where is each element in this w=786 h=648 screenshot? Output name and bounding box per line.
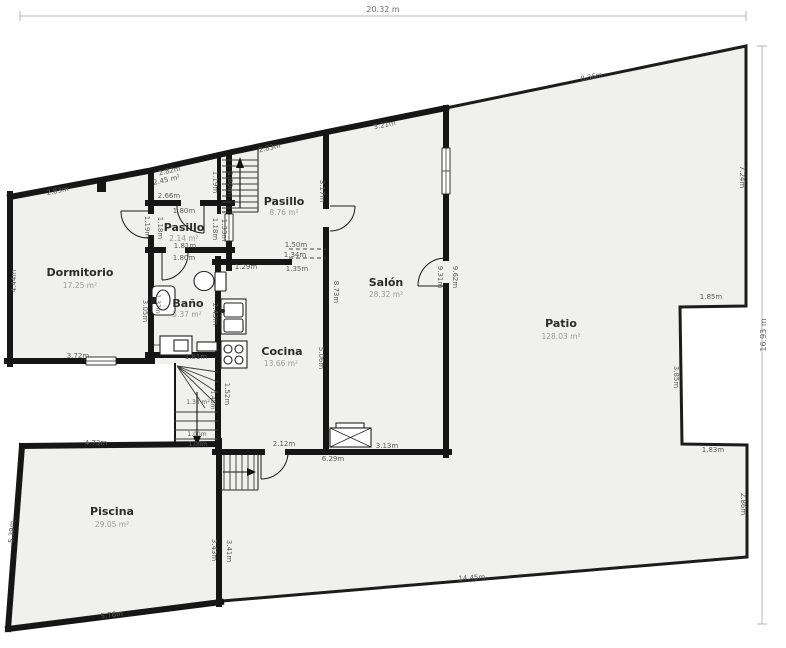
- toilet-bowl: [194, 272, 214, 291]
- dim-hatch-mid: 1.34m: [284, 251, 307, 259]
- dim-right-total: 16.93 m: [759, 318, 768, 351]
- dim-patio-right-upper: 7.24m: [738, 166, 746, 189]
- room-fills: [8, 46, 747, 629]
- dim-dorm-door-right: 1.18m: [156, 217, 164, 240]
- area-dormitorio: 17.25 m²: [63, 281, 97, 290]
- dim-hatch-top: 1.50m: [285, 241, 308, 249]
- dim-notch-side: 3.85m: [672, 366, 680, 389]
- kitchen-stove: [221, 341, 247, 368]
- dim-cocina-left: 2.43m: [211, 303, 219, 326]
- dim-pasillo-large-side: 3.17m: [318, 180, 326, 203]
- label-bano: Baño: [172, 297, 204, 310]
- floorplan-svg: 20.32 m 16.93 m Dormitorio 17.25 m² Pasi…: [0, 0, 786, 648]
- label-pasillo-large: Pasillo: [264, 195, 305, 208]
- dim-winder-exit-bottom: 1.00m: [188, 441, 207, 448]
- area-pasillo-large: 8.76 m²: [269, 208, 298, 217]
- area-patio: 128.03 m²: [542, 332, 581, 341]
- dim-winder-side: 1.52m: [223, 383, 231, 406]
- kitchen-sink-tap: [221, 309, 225, 313]
- cocina-fixtures: [221, 299, 247, 368]
- label-piscina: Piscina: [90, 505, 134, 518]
- dim-stairroom-side: 1.19m: [211, 171, 219, 194]
- label-patio: Patio: [545, 317, 577, 330]
- dim-piscina-left: 5.39m: [7, 520, 17, 543]
- piscina-fill: [8, 443, 220, 629]
- dim-pasillo-small-door: 1.80m: [173, 207, 196, 215]
- stove-burner-4: [235, 356, 243, 364]
- area-piscina: 29.05 m²: [95, 520, 129, 529]
- dim-bano-bottom: 1.81m: [185, 353, 208, 361]
- dim-house-bottom: 6.29m: [322, 455, 345, 463]
- toilet-tank: [215, 272, 226, 291]
- dim-patio-bottom: 14.45m: [458, 573, 486, 583]
- kitchen-sink-basin-bottom: [224, 319, 243, 332]
- dim-salon-side-inner: 9.31m: [436, 266, 444, 289]
- dim-dorm-door-left: 1.19m: [143, 216, 151, 239]
- bano-washer-inner: [174, 340, 188, 351]
- area-salon: 28.32 m²: [369, 290, 403, 299]
- dim-dorm-left: 4.44m: [10, 270, 18, 293]
- floorplan-canvas: 20.32 m 16.93 m Dormitorio 17.25 m² Pasi…: [0, 0, 786, 648]
- label-pasillo-small: Pasillo: [164, 221, 205, 234]
- dim-passage-right: 1.33m: [220, 219, 228, 242]
- dim-patio-right-lower: 2.86m: [739, 493, 747, 516]
- dim-piscina-right-inner: 3.43m: [210, 539, 218, 562]
- dim-piscina-right-outer: 3.41m: [225, 540, 233, 563]
- dim-piscina-bottom: 5.76m: [100, 610, 123, 621]
- dim-winder-exit-top: 1.00m: [187, 431, 206, 438]
- dim-bano-sink-side: 1.37m: [154, 294, 161, 313]
- stove-burner-2: [235, 345, 243, 353]
- dim-dorm-interior: 3.05m: [141, 300, 149, 323]
- dim-wall-height-full: 8.73m: [332, 281, 340, 304]
- dim-dorm-bottom: 3.72m: [67, 352, 90, 360]
- dim-piscina-top: 4.73m: [85, 439, 108, 447]
- dim-winder-inner: 1.45m: [209, 390, 216, 409]
- area-cocina: 13.66 m²: [264, 359, 298, 368]
- dim-pasillo-small-width: 1.81m: [174, 242, 197, 250]
- label-salon: Salón: [369, 276, 404, 289]
- dim-hatch-bottom: 1.35m: [286, 265, 309, 273]
- area-bano: 5.37 m²: [172, 310, 201, 319]
- dim-wall-height-lower: 5.06m: [317, 347, 325, 370]
- dim-top-total: 20.32 m: [366, 5, 399, 14]
- kitchen-sink-basin-top: [224, 303, 243, 317]
- dim-bano-door: 1.80m: [173, 254, 196, 262]
- bano-shelf: [197, 342, 217, 351]
- area-winder-stair: 1.33 m²: [186, 399, 210, 406]
- wall-top-jog: [97, 179, 106, 192]
- dim-cocina-top: 1.29m: [235, 263, 258, 271]
- dim-stair-width: 1.80m: [226, 172, 234, 195]
- dim-passage-left: 1.18m: [211, 218, 219, 241]
- salon-chimney-lintel: [336, 423, 364, 428]
- stove-burner-3: [224, 356, 232, 364]
- dim-pasillo-small-top: 2.66m: [158, 192, 181, 200]
- label-dormitorio: Dormitorio: [47, 266, 114, 279]
- stove-burner-1: [224, 345, 232, 353]
- dim-salon-box: 3.13m: [376, 442, 399, 450]
- dim-salon-side-outer: 9.62m: [451, 266, 459, 289]
- dim-notch-bottom: 1.83m: [702, 446, 725, 454]
- label-cocina: Cocina: [261, 345, 302, 358]
- dim-bottom-door: 2.12m: [273, 440, 296, 448]
- dim-notch-top: 1.85m: [700, 293, 723, 301]
